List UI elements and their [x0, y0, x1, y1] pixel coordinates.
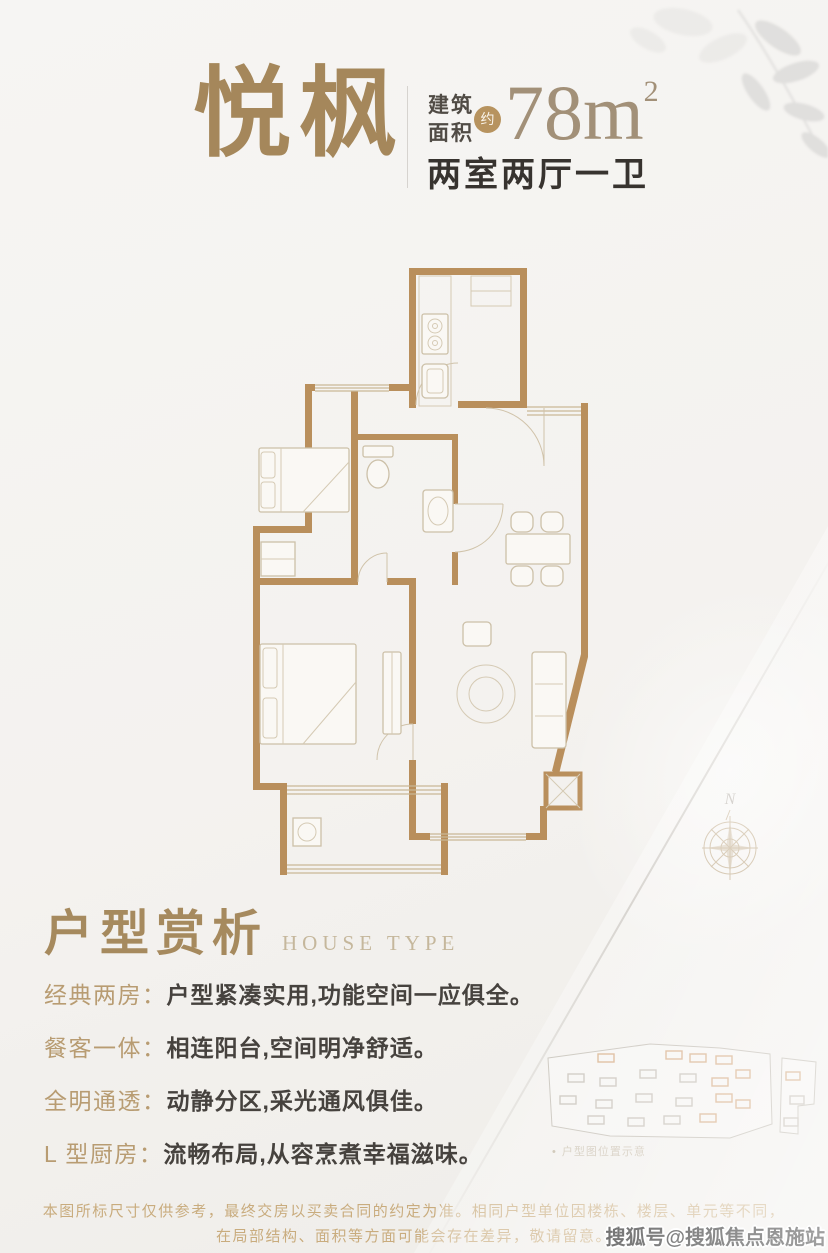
- site-plan-caption: •户型图位置示意: [552, 1143, 646, 1159]
- sohu-watermark: 搜狐号@搜狐焦点恩施站: [605, 1221, 825, 1250]
- compass-icon: N: [695, 788, 765, 888]
- area-value: 78m2: [505, 74, 659, 152]
- section-title-cn: 户型赏析: [44, 906, 268, 961]
- page-title: 悦枫: [193, 62, 405, 170]
- feature-text: 户型紧凑实用,功能空间一应俱全。: [167, 980, 534, 1010]
- feature-row: 餐客一体： 相连阳台,空间明净舒适。: [44, 1033, 534, 1063]
- feature-label: L 型厨房：: [44, 1139, 163, 1169]
- area-label: 建筑 面积: [428, 92, 474, 147]
- floor-plan: [243, 262, 603, 882]
- feature-text: 流畅布局,从容烹煮幸福滋味。: [163, 1139, 482, 1169]
- feature-label: 餐客一体：: [44, 1033, 167, 1063]
- caption-bullet-icon: •: [552, 1146, 557, 1158]
- bedroom-2-furniture: [259, 448, 349, 576]
- feature-text: 动静分区,采光通风俱佳。: [167, 1086, 438, 1116]
- bathroom-fixtures: [363, 446, 453, 532]
- dining-set: [506, 512, 570, 586]
- kitchen-fixtures: [419, 276, 511, 406]
- feature-label: 经典两房：: [44, 980, 167, 1010]
- balcony-fixtures: [293, 818, 321, 846]
- feature-row: 经典两房： 户型紧凑实用,功能空间一应俱全。: [44, 980, 534, 1010]
- square-meter-sup: 2: [644, 75, 659, 108]
- section-title-en: HOUSE TYPE: [282, 931, 459, 955]
- feature-row: L 型厨房： 流畅布局,从容烹煮幸福滋味。: [44, 1139, 534, 1169]
- layout-spec: 两室两厅一卫: [427, 147, 649, 196]
- bedroom-1-furniture: [260, 644, 356, 744]
- floor-plan-walls: [253, 268, 588, 875]
- poster-page: 悦枫 建筑 面积 约 78m2 两室两厅一卫: [0, 0, 828, 1253]
- feature-text: 相连阳台,空间明净舒适。: [167, 1033, 438, 1063]
- approx-badge: 约: [474, 106, 501, 133]
- feature-list: 经典两房： 户型紧凑实用,功能空间一应俱全。 餐客一体： 相连阳台,空间明净舒适…: [44, 980, 534, 1192]
- section-heading: 户型赏析 HOUSE TYPE: [44, 894, 459, 965]
- feature-row: 全明通透： 动静分区,采光通风俱佳。: [44, 1086, 534, 1116]
- compass-north-label: N: [724, 791, 737, 808]
- header-divider: [407, 86, 408, 188]
- feature-label: 全明通透：: [44, 1086, 167, 1116]
